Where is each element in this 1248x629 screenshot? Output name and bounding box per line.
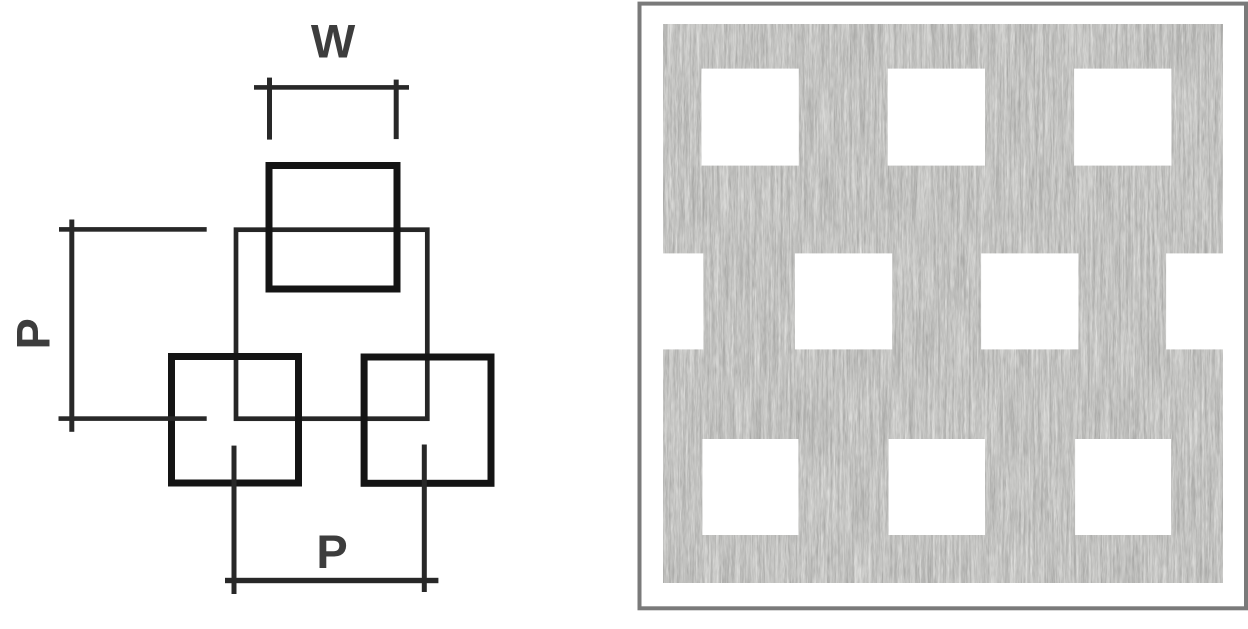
svg-text:P: P xyxy=(7,318,60,349)
svg-text:P: P xyxy=(316,525,347,578)
svg-text:W: W xyxy=(311,15,356,68)
